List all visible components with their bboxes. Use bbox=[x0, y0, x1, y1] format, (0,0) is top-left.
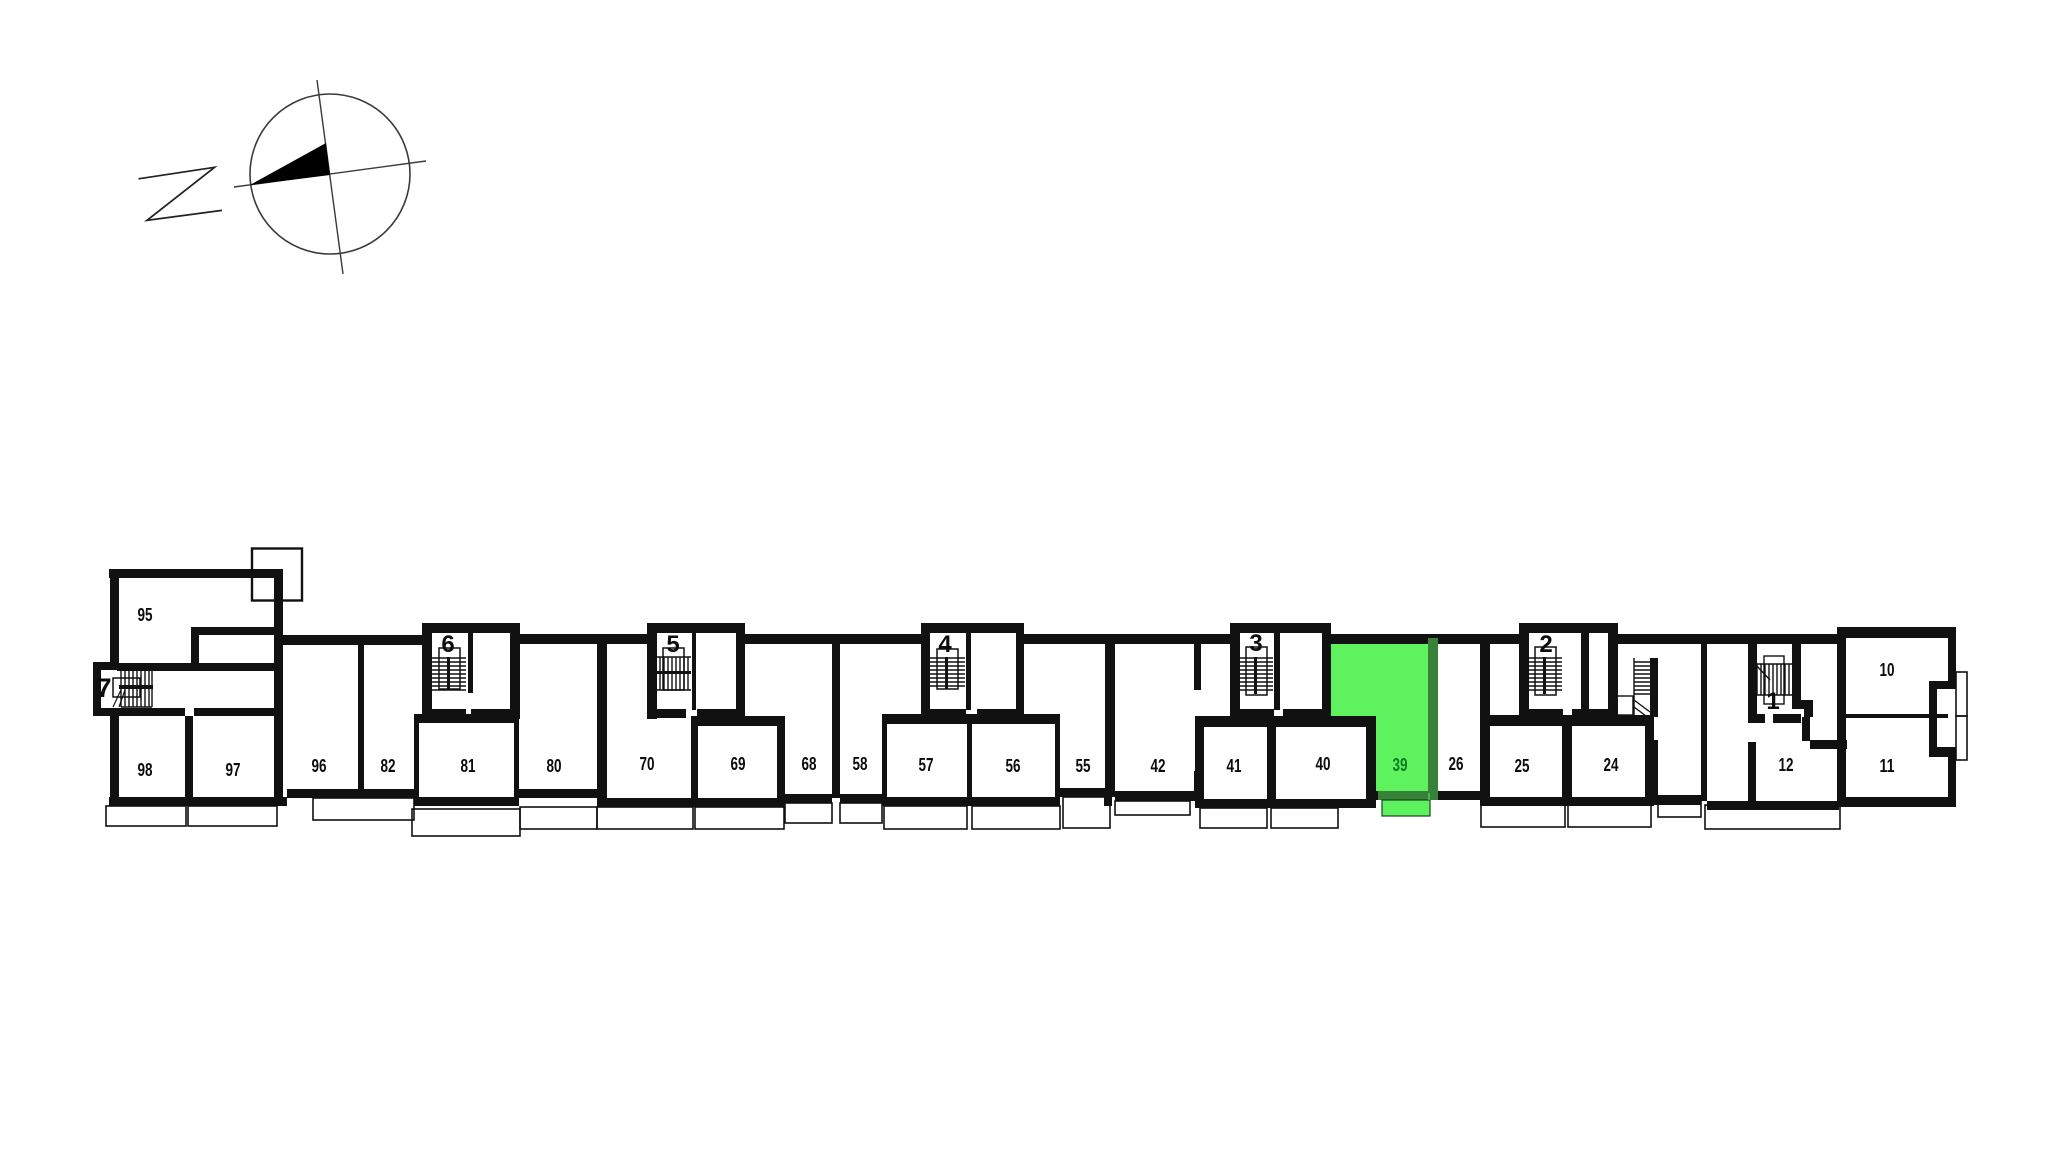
svg-text:10: 10 bbox=[1880, 660, 1895, 680]
svg-text:6: 6 bbox=[441, 631, 454, 658]
svg-text:96: 96 bbox=[312, 756, 327, 776]
svg-text:95: 95 bbox=[138, 605, 153, 625]
svg-text:58: 58 bbox=[853, 754, 868, 774]
svg-text:12: 12 bbox=[1779, 755, 1794, 775]
svg-text:98: 98 bbox=[138, 760, 153, 780]
svg-text:68: 68 bbox=[802, 754, 817, 774]
svg-text:1: 1 bbox=[1766, 688, 1779, 715]
svg-text:7: 7 bbox=[96, 673, 111, 703]
svg-text:69: 69 bbox=[731, 754, 746, 774]
svg-text:26: 26 bbox=[1449, 754, 1464, 774]
svg-text:11: 11 bbox=[1880, 756, 1895, 776]
svg-text:80: 80 bbox=[547, 756, 562, 776]
svg-text:41: 41 bbox=[1227, 756, 1242, 776]
svg-text:82: 82 bbox=[381, 756, 396, 776]
svg-text:4: 4 bbox=[938, 631, 952, 658]
svg-text:25: 25 bbox=[1515, 756, 1530, 776]
svg-text:56: 56 bbox=[1006, 756, 1021, 776]
svg-text:55: 55 bbox=[1076, 756, 1091, 776]
svg-text:42: 42 bbox=[1151, 756, 1166, 776]
svg-text:5: 5 bbox=[666, 631, 679, 658]
svg-text:57: 57 bbox=[919, 755, 934, 775]
svg-text:24: 24 bbox=[1604, 755, 1619, 775]
svg-text:40: 40 bbox=[1316, 754, 1331, 774]
svg-text:70: 70 bbox=[640, 754, 655, 774]
svg-text:39: 39 bbox=[1393, 755, 1408, 775]
svg-text:2: 2 bbox=[1539, 631, 1552, 658]
svg-text:81: 81 bbox=[461, 756, 476, 776]
svg-text:3: 3 bbox=[1249, 630, 1262, 657]
svg-text:97: 97 bbox=[226, 760, 241, 780]
